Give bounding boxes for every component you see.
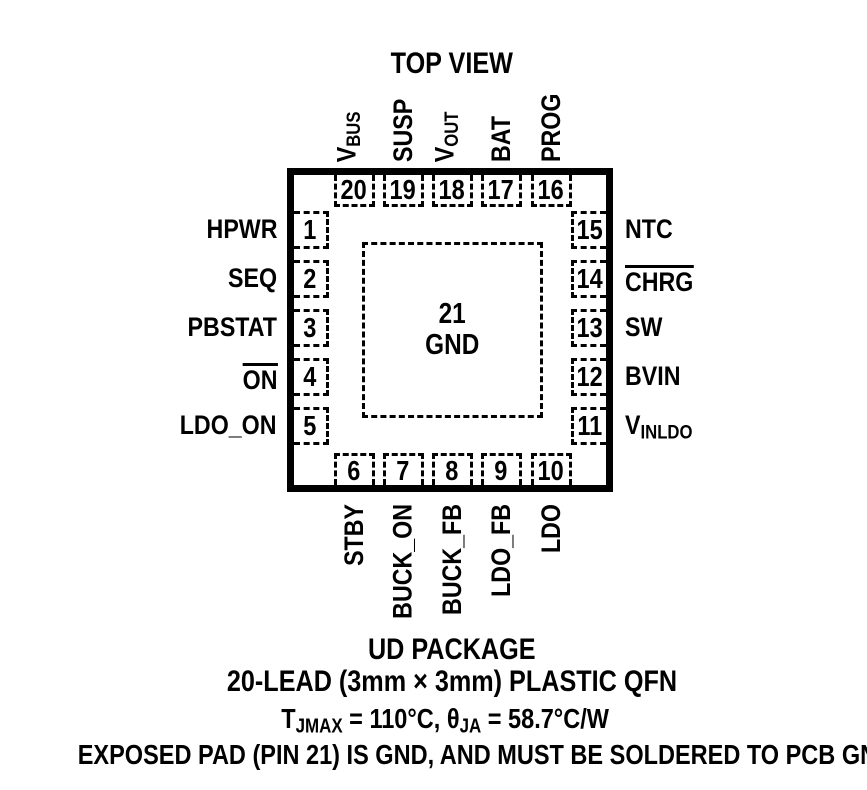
pin-label-sw: SW: [625, 314, 662, 341]
pin-pad-1: 1: [294, 211, 329, 249]
pin-label-part: LDO_FB: [486, 504, 516, 597]
pin-label-text: PROG: [536, 94, 566, 162]
pin-label-ldo-fb: LDO_FB: [488, 504, 514, 597]
pin-label-text: SUSP: [388, 99, 418, 162]
pin-number: 16: [538, 176, 564, 204]
pin-label-part: PBSTAT: [188, 312, 277, 342]
pin-label-part: LDO_ON: [180, 410, 277, 440]
pin-label-text: ON: [242, 365, 277, 395]
pin-pad-12: 12: [571, 358, 606, 396]
pin-pad-7: 7: [383, 453, 424, 485]
pin-label-part: V: [430, 147, 460, 162]
pin-pad-10: 10: [531, 453, 572, 485]
package-name: UD PACKAGE: [368, 633, 536, 667]
pin-label-text: NTC: [625, 214, 673, 244]
pin-number: 7: [396, 457, 409, 485]
pin-pad-6: 6: [334, 453, 375, 485]
thermal-t: T: [282, 703, 296, 734]
pin-label-text: BUCK_ON: [388, 504, 418, 619]
pin-pad-17: 17: [481, 175, 522, 207]
overline-bar: CHRG: [625, 265, 693, 297]
pin-label-part: V: [625, 410, 640, 440]
pin-label-prog: PROG: [538, 94, 564, 162]
pin-label-part: HPWR: [206, 214, 277, 244]
pin-label-text: CHRG: [625, 267, 693, 297]
pin-label-text: LDO_FB: [486, 504, 516, 597]
pin-number: 18: [439, 176, 465, 204]
pin-label-bvin: BVIN: [625, 363, 680, 390]
pin-label-text: BVIN: [625, 361, 680, 391]
pin-label-ldo-on: LDO_ON: [180, 412, 277, 439]
thermal-theta: θ: [447, 703, 460, 734]
pin-label-text: BUCK_FB: [437, 504, 467, 615]
pin-label-part: SEQ: [228, 263, 277, 293]
pin-label-text: VBUS: [332, 111, 362, 162]
thermal-mid: = 110°C,: [343, 703, 447, 734]
pin-label-text: STBY: [339, 504, 369, 566]
pin-label-subscript: OUT: [441, 111, 463, 146]
overline-bar: ON: [242, 363, 277, 395]
exposed-pad-name: GND: [425, 330, 479, 361]
pin-number: 10: [538, 457, 564, 485]
pin-pad-13: 13: [571, 309, 606, 347]
pin-label-seq: SEQ: [228, 265, 277, 292]
pin-label-part: BUCK_FB: [437, 504, 467, 615]
pin-number: 20: [341, 176, 367, 204]
exposed-pad: 21 GND: [362, 242, 543, 418]
pin-label-text: LDO: [536, 504, 566, 553]
pin-label-part: STBY: [339, 504, 369, 566]
pin-label-text: VINLDO: [625, 410, 692, 440]
pin-pad-15: 15: [571, 211, 606, 249]
pin-number: 19: [390, 176, 416, 204]
pin-pad-14: 14: [571, 260, 606, 298]
pin-label-vbus: VBUS: [334, 111, 367, 162]
pin-label-text: SW: [625, 312, 662, 342]
package-description-line: 20-LEAD (3mm × 3mm) PLASTIC QFN: [37, 665, 867, 699]
exposed-pad-note: EXPOSED PAD (PIN 21) IS GND, AND MUST BE…: [78, 738, 867, 771]
pin-label-part: BAT: [486, 116, 516, 162]
exposed-pad-note-line: EXPOSED PAD (PIN 21) IS GND, AND MUST BE…: [0, 738, 867, 771]
pin-pad-5: 5: [294, 407, 329, 445]
pin-number: 2: [303, 265, 316, 293]
pin-label-text: PBSTAT: [188, 312, 277, 342]
pin-label-part: ON: [242, 365, 277, 395]
pin-label-ntc: NTC: [625, 216, 673, 243]
pin-number: 12: [577, 363, 603, 391]
pin-label-subscript: INLDO: [640, 421, 692, 443]
pin-label-hpwr: HPWR: [206, 216, 277, 243]
pin-pad-3: 3: [294, 309, 329, 347]
pin-pad-20: 20: [334, 175, 375, 207]
pin-label-stby: STBY: [341, 504, 367, 566]
pin-label-text: LDO_ON: [180, 410, 277, 440]
package-name-line: UD PACKAGE: [37, 633, 867, 667]
pin-number: 15: [577, 216, 603, 244]
pin-label-chrg: CHRG: [625, 265, 693, 297]
pin-label-part: SUSP: [388, 99, 418, 162]
pin-number: 5: [303, 412, 316, 440]
pin-pad-9: 9: [481, 453, 522, 485]
exposed-pad-number: 21: [439, 299, 466, 330]
pinout-diagram: TOP VIEW 21 GND 20VBUS19SUSP18VOUT17BAT1…: [0, 0, 867, 790]
pin-number: 11: [578, 412, 603, 440]
pin-label-text: VOUT: [430, 111, 460, 162]
pin-label-part: CHRG: [625, 267, 693, 297]
pin-label-susp: SUSP: [390, 99, 416, 162]
thermal-t-subscript: JMAX: [296, 715, 343, 737]
pin-label-text: HPWR: [206, 214, 277, 244]
pin-label-vinldo: VINLDO: [625, 412, 692, 446]
pin-pad-16: 16: [531, 175, 572, 207]
package-description: 20-LEAD (3mm × 3mm) PLASTIC QFN: [227, 665, 677, 699]
pin-number: 14: [577, 265, 603, 293]
pin-label-vout: VOUT: [432, 111, 465, 162]
pin-label-text: SEQ: [228, 263, 277, 293]
pin-label-subscript: BUS: [343, 111, 365, 146]
top-view-heading: TOP VIEW: [37, 46, 867, 82]
pin-pad-19: 19: [383, 175, 424, 207]
pin-number: 13: [577, 314, 603, 342]
pin-pad-8: 8: [432, 453, 473, 485]
thermal-theta-subscript: JA: [460, 715, 482, 737]
pin-number: 4: [303, 363, 316, 391]
pin-pad-4: 4: [294, 358, 329, 396]
pin-label-buck-on: BUCK_ON: [390, 504, 416, 619]
pin-label-pbstat: PBSTAT: [188, 314, 277, 341]
pin-label-bat: BAT: [488, 116, 514, 162]
top-view-label: TOP VIEW: [391, 46, 513, 82]
pin-number: 9: [494, 457, 507, 485]
pin-number: 1: [303, 216, 316, 244]
pin-pad-11: 11: [571, 407, 606, 445]
pin-label-part: PROG: [536, 94, 566, 162]
pin-number: 3: [303, 314, 316, 342]
pin-label-part: V: [332, 147, 362, 162]
thermal-tail: = 58.7°C/W: [482, 703, 610, 734]
pin-pad-2: 2: [294, 260, 329, 298]
pin-number: 8: [445, 457, 458, 485]
pin-label-text: BAT: [486, 116, 516, 162]
pin-number: 6: [347, 457, 360, 485]
pin-label-part: BVIN: [625, 361, 680, 391]
pin-label-buck-fb: BUCK_FB: [439, 504, 465, 615]
pin-pad-18: 18: [432, 175, 473, 207]
pin-label-part: BUCK_ON: [388, 504, 418, 619]
pin-number: 17: [488, 176, 514, 204]
pin-label-ldo: LDO: [538, 504, 564, 553]
pin-label-part: NTC: [625, 214, 673, 244]
pin-label-on: ON: [242, 363, 277, 395]
pin-label-part: LDO: [536, 504, 566, 553]
pin-label-part: SW: [625, 312, 662, 342]
